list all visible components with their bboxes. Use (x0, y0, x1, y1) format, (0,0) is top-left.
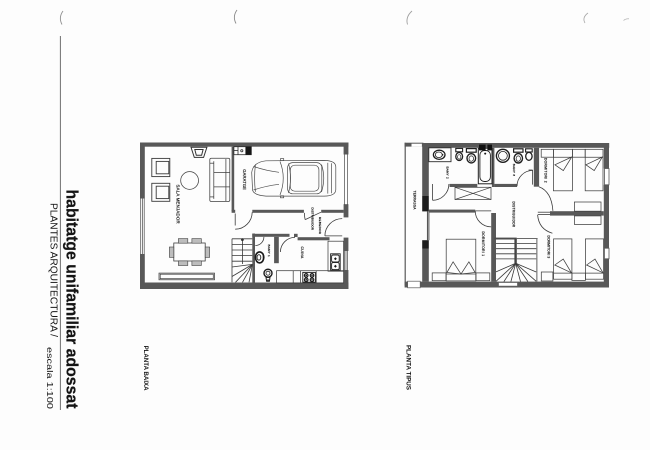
svg-text:TERRASSA: TERRASSA (412, 191, 416, 211)
svg-text:REBEDOR: REBEDOR (318, 217, 322, 235)
svg-text:SALA MENJADOR: SALA MENJADOR (176, 185, 181, 224)
svg-text:habitatge unifamiliar adossat: habitatge unifamiliar adossat (63, 190, 82, 409)
svg-text:PLANTES ARQUITECTURA /: PLANTES ARQUITECTURA / (47, 203, 58, 337)
svg-text:DISTRIBUIDOR: DISTRIBUIDOR (512, 202, 516, 228)
svg-text:DISTRIBUIDOR: DISTRIBUIDOR (310, 208, 314, 231)
svg-text:DORMITORI 1: DORMITORI 1 (481, 232, 485, 257)
svg-text:DORMITORI 3: DORMITORI 3 (547, 236, 551, 259)
svg-text:BANY 1: BANY 1 (267, 245, 271, 257)
svg-text:escala 1:100: escala 1:100 (45, 347, 55, 409)
svg-text:CUINA: CUINA (300, 247, 304, 259)
svg-text:BANY 2: BANY 2 (446, 167, 450, 179)
svg-text:DORMITORI 2: DORMITORI 2 (544, 158, 548, 183)
svg-text:PLANTA BAIXA: PLANTA BAIXA (142, 346, 149, 391)
svg-text:GARATGE: GARATGE (242, 169, 247, 190)
svg-text:PLANTA TIPUS: PLANTA TIPUS (404, 345, 411, 391)
svg-text:BANY 3: BANY 3 (512, 164, 516, 176)
